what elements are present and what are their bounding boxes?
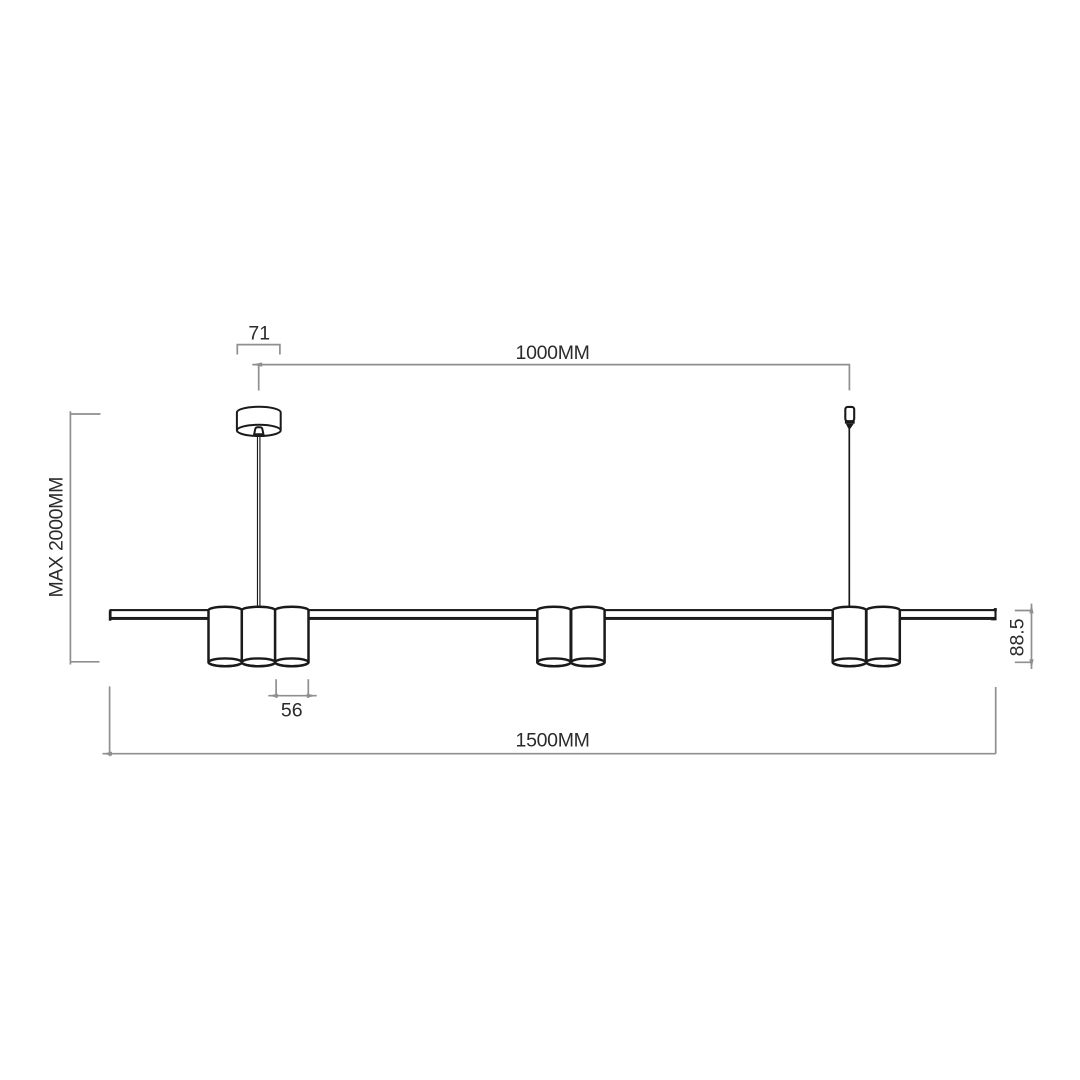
svg-text:56: 56 xyxy=(281,700,303,722)
svg-text:1500MM: 1500MM xyxy=(516,729,590,751)
svg-text:1000MM: 1000MM xyxy=(516,342,590,364)
svg-text:71: 71 xyxy=(248,322,270,344)
svg-text:88.5: 88.5 xyxy=(1007,618,1029,656)
svg-text:MAX 2000MM: MAX 2000MM xyxy=(45,477,67,598)
